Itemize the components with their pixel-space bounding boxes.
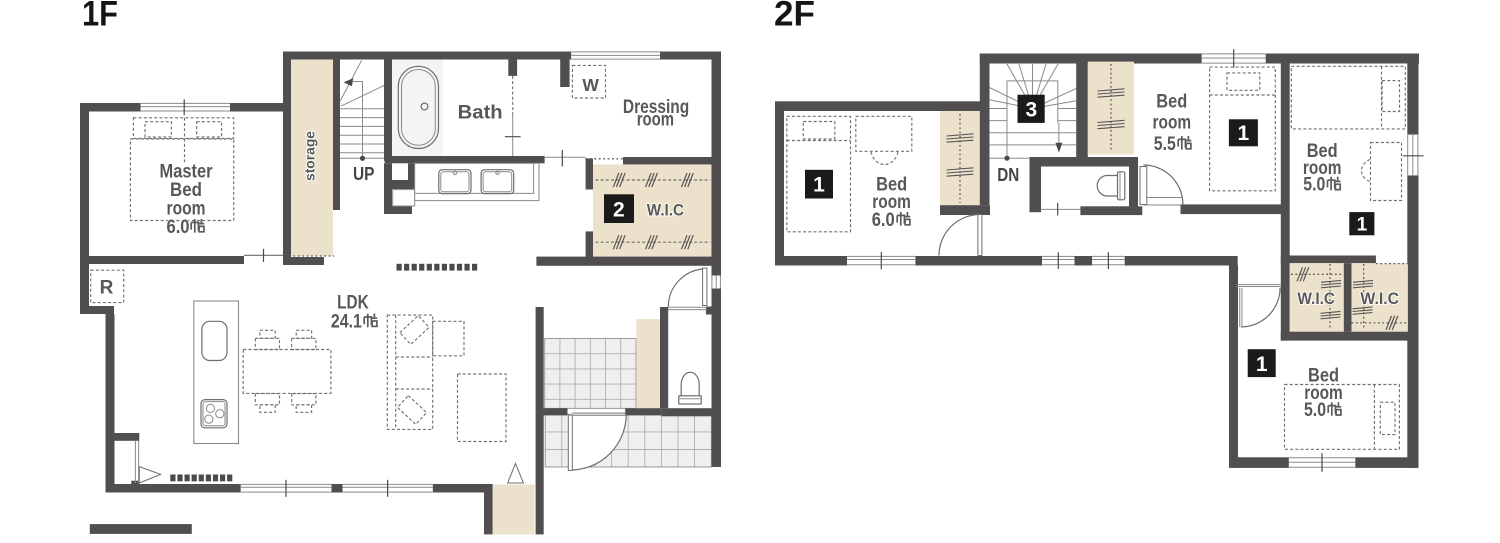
svg-text:W.I.C: W.I.C [1360,290,1399,308]
svg-text:2F: 2F [774,0,815,34]
svg-text:1F: 1F [82,0,118,34]
svg-text:storage: storage [303,131,318,181]
svg-text:6.0: 6.0 [167,217,190,238]
svg-text:room: room [637,109,674,130]
svg-text:2: 2 [613,199,625,222]
svg-text:room: room [1153,113,1192,134]
svg-text:1: 1 [1238,122,1250,145]
svg-text:6.0: 6.0 [872,210,895,231]
svg-text:3: 3 [1025,99,1037,122]
svg-text:5.0: 5.0 [1303,175,1325,196]
svg-text:R: R [100,278,114,299]
svg-text:UP: UP [353,164,375,184]
svg-text:1: 1 [813,174,825,197]
svg-text:1: 1 [1357,215,1368,236]
svg-text:W.I.C: W.I.C [647,202,684,220]
svg-text:Bath: Bath [458,103,503,124]
svg-text:5.5: 5.5 [1154,134,1176,155]
svg-text:1: 1 [1256,353,1268,376]
svg-text:24.1: 24.1 [331,310,362,332]
svg-text:Bed: Bed [1156,92,1187,113]
svg-text:5.0: 5.0 [1304,400,1326,421]
svg-text:W: W [582,75,599,95]
svg-text:W.I.C: W.I.C [1297,290,1335,308]
svg-text:DN: DN [997,165,1019,185]
